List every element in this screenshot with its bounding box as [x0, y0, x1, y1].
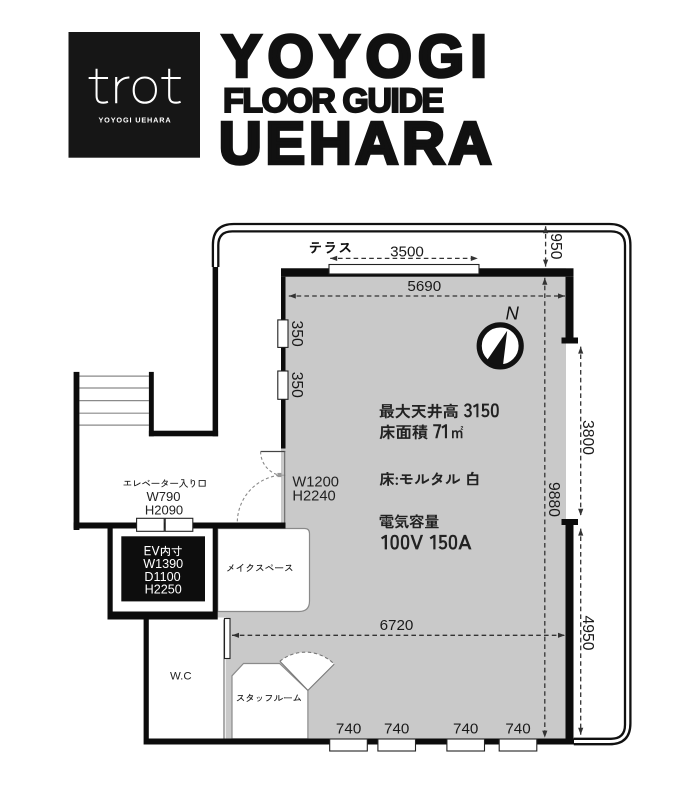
- svg-text:UEHARA: UEHARA: [219, 111, 495, 177]
- svg-text:W1390: W1390: [143, 557, 183, 571]
- svg-text:YOYOGI UEHARA: YOYOGI UEHARA: [98, 116, 171, 125]
- svg-text:3800: 3800: [579, 420, 596, 455]
- svg-text:740: 740: [505, 721, 530, 738]
- svg-text:4950: 4950: [579, 616, 596, 651]
- svg-text:740: 740: [336, 721, 361, 738]
- svg-text:W.C: W.C: [170, 670, 192, 682]
- svg-text:740: 740: [453, 721, 478, 738]
- svg-text:YOYOGI: YOYOGI: [222, 23, 493, 89]
- svg-text:9880: 9880: [545, 482, 562, 517]
- svg-text:3500: 3500: [390, 244, 424, 261]
- svg-text:350: 350: [288, 321, 305, 347]
- svg-text:N: N: [506, 302, 520, 323]
- svg-text:740: 740: [384, 721, 409, 738]
- svg-text:H2250: H2250: [145, 583, 182, 597]
- svg-text:5690: 5690: [407, 278, 441, 295]
- svg-text:H2090: H2090: [145, 503, 183, 518]
- svg-text:6720: 6720: [380, 617, 414, 634]
- svg-text:950: 950: [547, 233, 564, 259]
- svg-text:H2240: H2240: [292, 488, 335, 504]
- svg-text:350: 350: [288, 372, 305, 398]
